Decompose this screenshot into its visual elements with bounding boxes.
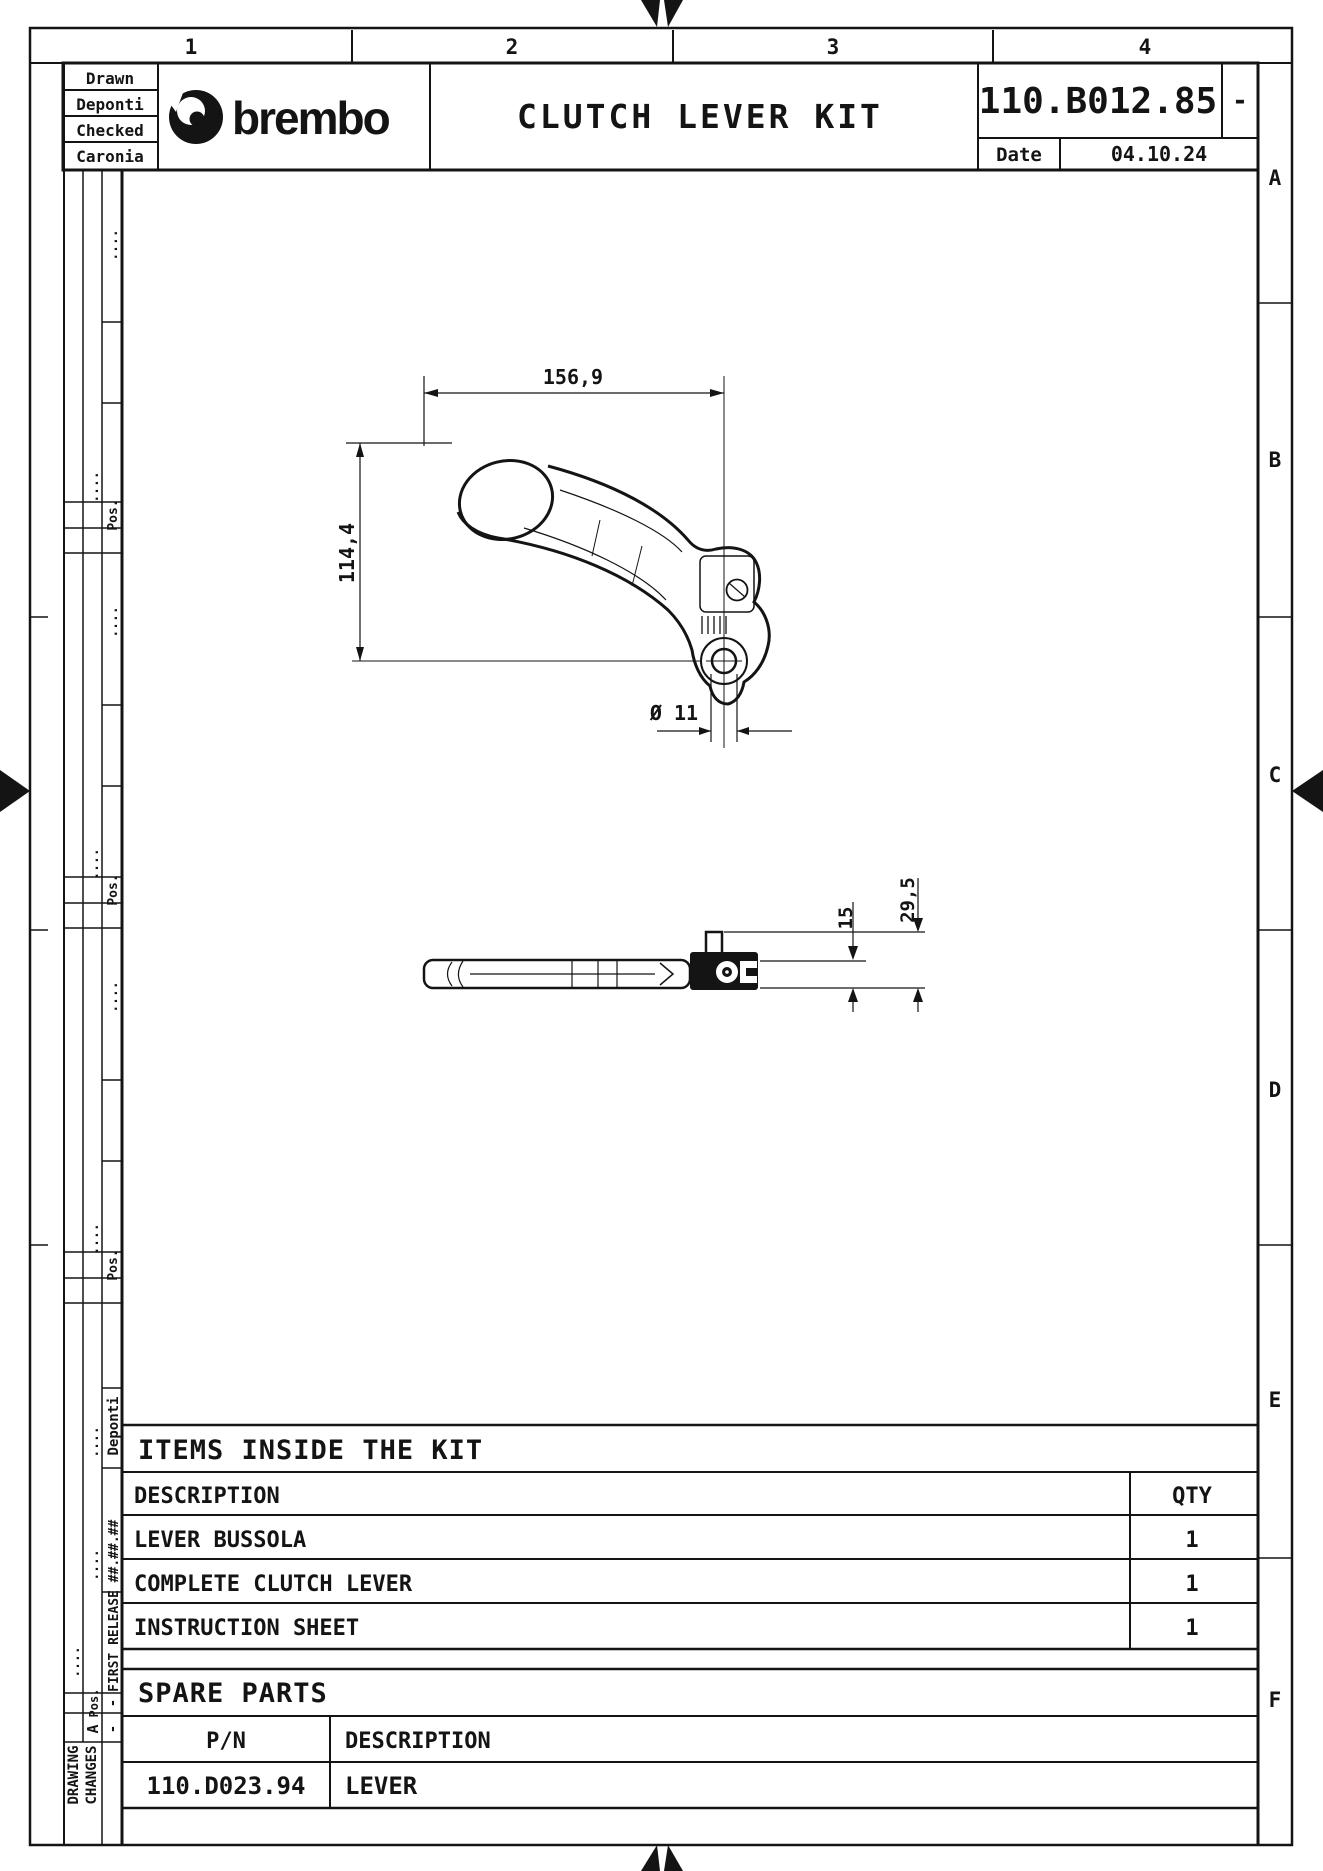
dots-placeholder: .... [87,471,102,502]
title-block: Drawn Deponti Checked Caronia brembo CLU… [63,63,1258,170]
items-col-description: DESCRIPTION [134,1484,280,1509]
brembo-wordmark: brembo [232,92,390,144]
checked-name: Caronia [76,147,143,166]
drawn-name: Deponti [76,95,144,114]
row-ref-a: A [1269,166,1282,190]
lever-side-view [424,932,758,990]
spare-description: LEVER [345,1772,418,1800]
items-table: ITEMS INSIDE THE KIT DESCRIPTION QTY LEV… [122,1425,1258,1649]
row-ref-e: E [1269,1388,1282,1412]
col-ref-2: 2 [506,35,519,59]
pos-label: Pos. [87,1689,101,1718]
dim-front-width: 156,9 [543,365,603,389]
dim-side-thickness: 15 [835,907,857,930]
dots-placeholder: .... [87,1426,102,1457]
item-qty: 1 [1185,1616,1198,1641]
spare-col-pn: P/N [206,1729,246,1754]
dim-side-total: 29,5 [897,877,919,923]
pos-label: Pos. [106,874,121,905]
item-description: INSTRUCTION SHEET [134,1616,359,1641]
date-value: 04.10.24 [1111,142,1207,166]
dim-hole-diameter: Ø 11 [649,701,698,725]
revision-code: - [1232,86,1248,116]
fold-mark-left-icon [0,770,30,812]
pos-label: Pos. [106,1249,121,1280]
item-qty: 1 [1185,1528,1198,1553]
dots-placeholder: .... [68,1646,83,1677]
dots-placeholder: .... [87,848,102,879]
part-number: 110.B012.85 [979,81,1217,122]
date-label: Date [996,144,1042,166]
dim-front-height: 114,4 [335,523,359,583]
items-table-row: COMPLETE CLUTCH LEVER 1 [134,1572,1199,1597]
sheet-svg: 1 2 3 4 A B C D E F Drawn Deponti Checke… [0,0,1323,1871]
spare-parts-title: SPARE PARTS [138,1678,328,1709]
fold-mark-top-icon [664,0,683,27]
brembo-logo-icon [166,90,223,144]
fold-mark-right-icon [1292,770,1323,812]
revision-dash: - [105,1725,121,1733]
col-ref-4: 4 [1139,35,1152,59]
drawn-label: Drawn [86,69,134,88]
row-ref-b: B [1269,448,1282,472]
lever-front-view [451,451,769,704]
item-description: LEVER BUSSOLA [134,1528,306,1553]
item-description: COMPLETE CLUTCH LEVER [134,1572,413,1597]
spare-col-description: DESCRIPTION [345,1729,491,1754]
row-ref-d: D [1269,1078,1282,1102]
item-qty: 1 [1185,1572,1198,1597]
dots-placeholder: .... [106,981,121,1012]
drawing-sheet: 1 2 3 4 A B C D E F Drawn Deponti Checke… [0,0,1323,1871]
drawing-changes-label: CHANGES [84,1745,100,1804]
revision-dash: - [105,1699,121,1707]
dots-placeholder: .... [87,1223,102,1254]
row-ref-f: F [1269,1688,1282,1712]
revision-letter: A [84,1724,102,1733]
dots-placeholder: .... [106,606,121,637]
col-ref-1: 1 [185,35,198,59]
drawing-title: CLUTCH LEVER KIT [517,97,883,136]
revision-date-mask: ##.##.## [107,1520,122,1583]
dots-placeholder: .... [87,1549,102,1580]
items-col-qty: QTY [1172,1484,1212,1509]
drawing-changes-label: DRAWING [66,1745,82,1804]
pos-label: Pos. [106,499,121,530]
revision-description: FIRST RELEASE [107,1590,122,1692]
row-ref-c: C [1269,763,1282,787]
col-ref-3: 3 [827,35,840,59]
fold-mark-bottom-icon [641,1845,660,1871]
dots-placeholder: .... [106,229,121,260]
fold-mark-bottom-icon [664,1845,683,1871]
spare-pn: 110.D023.94 [147,1772,306,1800]
items-table-title: ITEMS INSIDE THE KIT [138,1435,483,1466]
fold-mark-top-icon [641,0,660,27]
side-view-dimensions: 15 29,5 [724,877,925,1012]
revision-drawn-name: Deponti [106,1396,122,1455]
spare-parts-row: 110.D023.94 LEVER [147,1772,418,1800]
checked-label: Checked [76,121,143,140]
items-table-row: LEVER BUSSOLA 1 [134,1528,1199,1553]
spare-parts-table: SPARE PARTS P/N DESCRIPTION 110.D023.94 … [122,1669,1258,1808]
revision-strip: Pos. Pos. Pos. .... .... .... .... .... … [64,170,122,1845]
items-table-row: INSTRUCTION SHEET 1 [134,1616,1199,1641]
